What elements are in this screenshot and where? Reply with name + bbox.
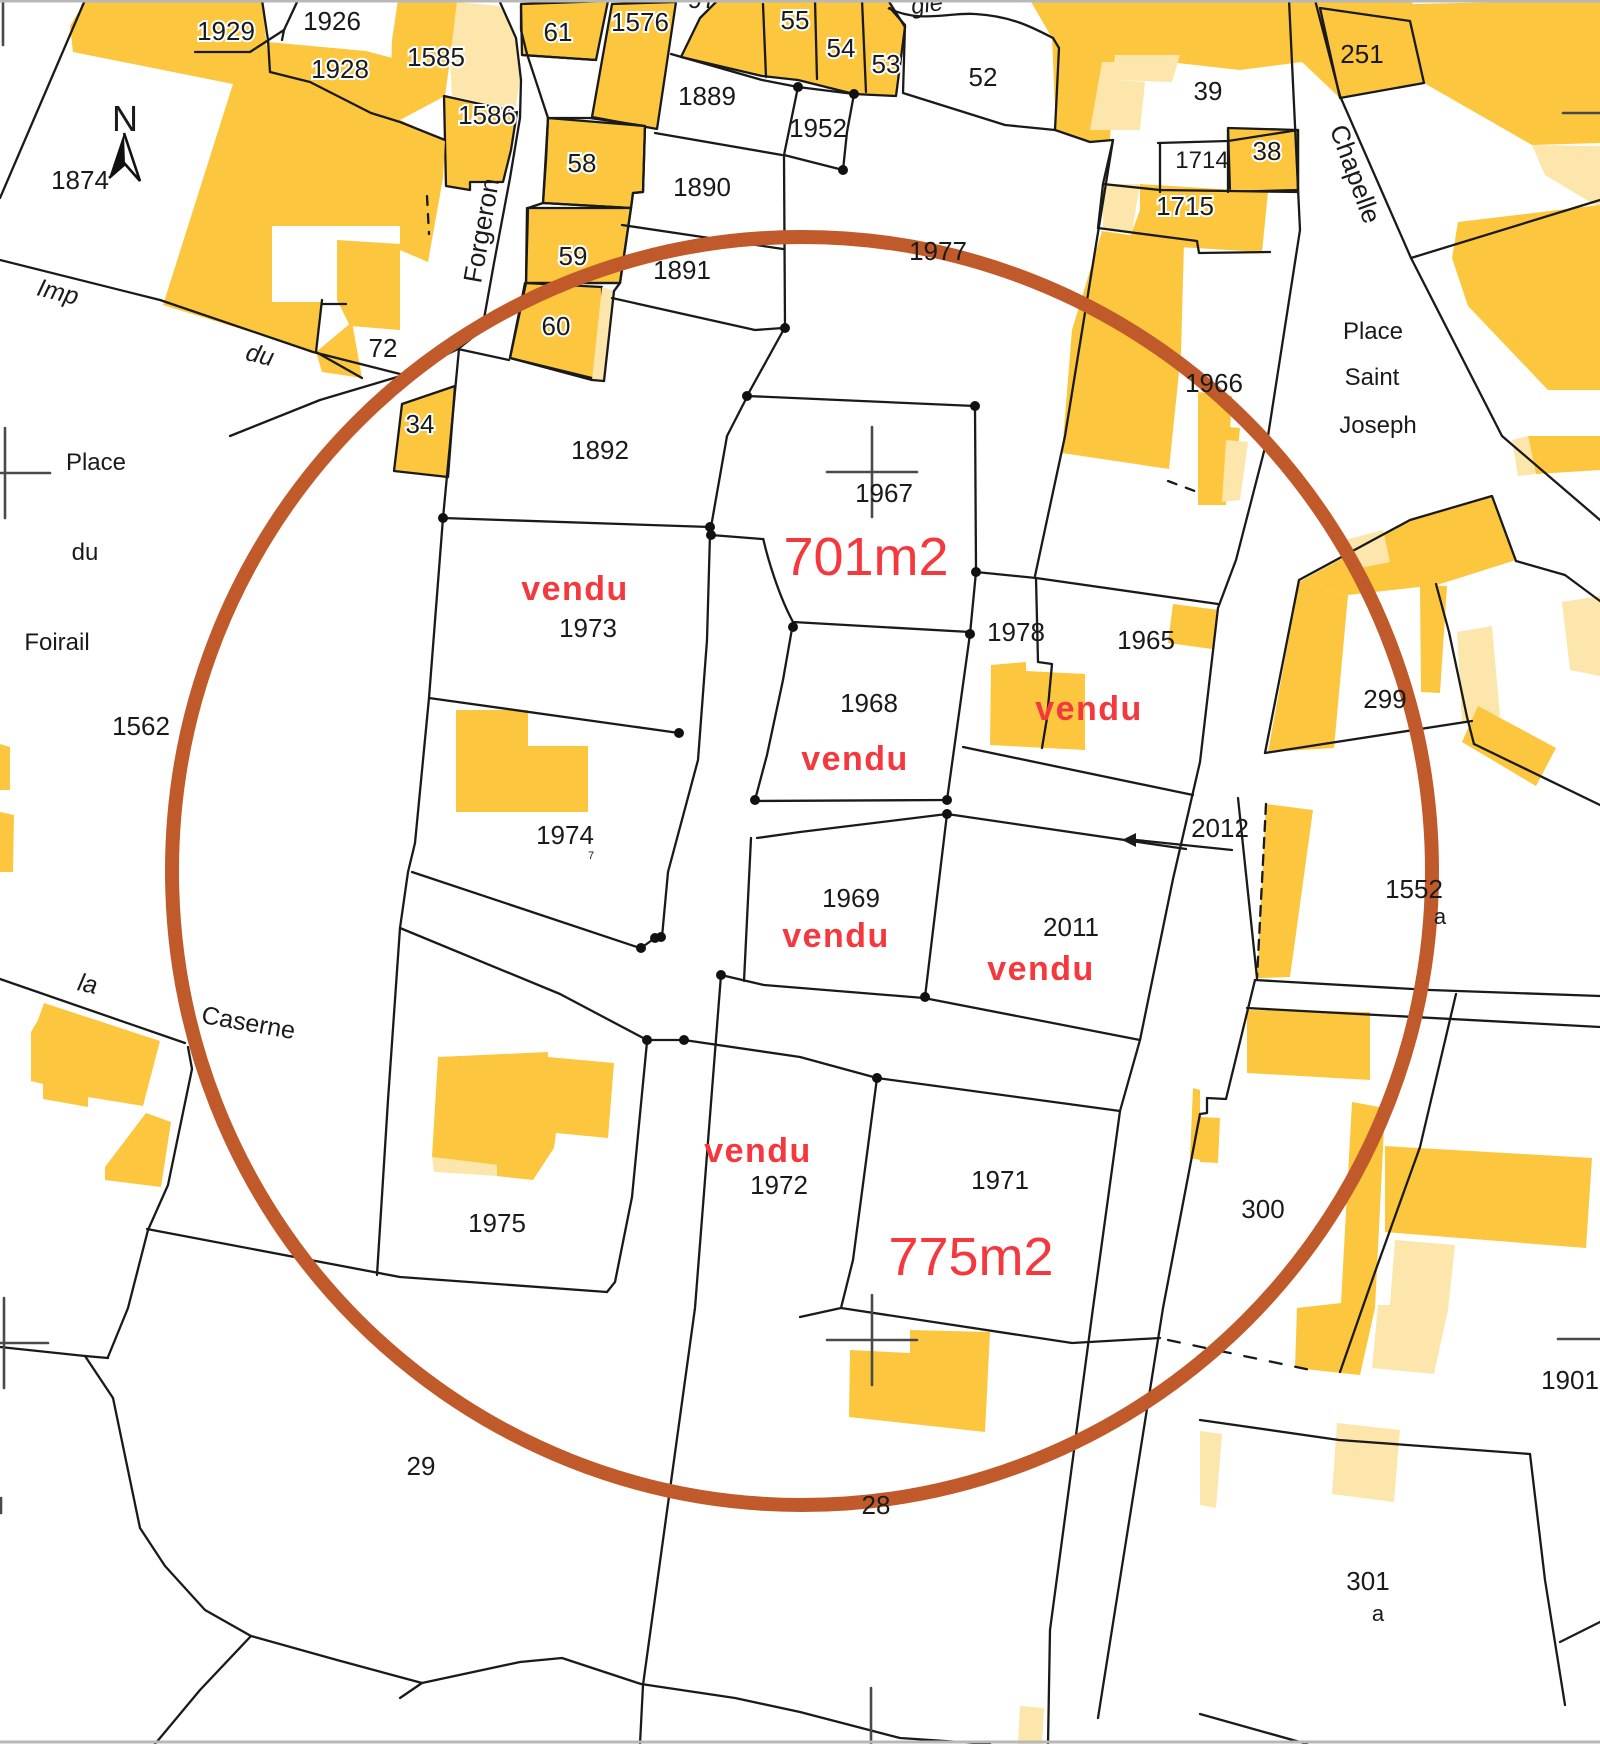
svg-text:1714: 1714 [1175,147,1228,174]
svg-text:a: a [1434,904,1447,929]
svg-text:1968: 1968 [840,688,898,718]
svg-text:52: 52 [969,62,998,92]
svg-text:1967: 1967 [855,478,913,508]
svg-text:Place: Place [1343,318,1403,345]
svg-text:1972: 1972 [750,1170,808,1200]
svg-text:72: 72 [369,333,398,363]
svg-text:vendu: vendu [987,950,1095,988]
svg-text:1586: 1586 [458,100,516,130]
svg-text:55: 55 [781,5,810,35]
svg-text:1715: 1715 [1156,191,1214,221]
svg-text:1926: 1926 [303,6,361,36]
svg-text:701m2: 701m2 [783,527,948,587]
svg-text:60: 60 [542,311,571,341]
svg-text:29: 29 [407,1451,436,1481]
svg-text:vendu: vendu [521,570,629,608]
svg-text:1966: 1966 [1185,368,1243,398]
svg-text:1576: 1576 [611,7,669,37]
svg-text:vendu: vendu [704,1132,812,1170]
svg-text:58: 58 [568,148,597,178]
svg-text:1892: 1892 [571,435,629,465]
svg-text:299: 299 [1363,684,1406,714]
svg-text:54: 54 [827,33,856,63]
svg-text:1929: 1929 [197,16,255,46]
svg-text:34: 34 [406,409,435,439]
svg-text:1974: 1974 [536,820,594,850]
svg-text:vendu: vendu [782,917,890,955]
svg-text:1952: 1952 [789,113,847,143]
svg-text:38: 38 [1253,136,1282,166]
svg-text:1562: 1562 [112,711,170,741]
svg-text:Saint: Saint [1345,364,1400,391]
svg-text:Joseph: Joseph [1339,412,1416,439]
svg-text:1585: 1585 [407,42,465,72]
svg-text:1975: 1975 [468,1208,526,1238]
svg-text:Foirail: Foirail [24,629,89,656]
svg-text:28: 28 [862,1490,891,1520]
svg-text:1891: 1891 [653,255,711,285]
svg-text:vendu: vendu [801,740,909,778]
svg-text:1552: 1552 [1385,874,1443,904]
svg-text:Place: Place [66,449,126,476]
svg-text:1901: 1901 [1541,1365,1599,1395]
svg-text:53: 53 [872,49,901,79]
svg-text:1977: 1977 [909,236,967,266]
svg-text:59: 59 [559,241,588,271]
svg-text:7: 7 [588,850,594,862]
svg-text:61: 61 [544,17,573,47]
svg-text:2011: 2011 [1043,912,1099,942]
svg-text:775m2: 775m2 [888,1227,1053,1287]
svg-text:1928: 1928 [311,54,369,84]
svg-text:2012: 2012 [1191,813,1249,843]
svg-text:1965: 1965 [1117,625,1175,655]
svg-text:du: du [72,539,99,566]
svg-text:1889: 1889 [678,81,736,111]
svg-text:vendu: vendu [1035,690,1143,728]
svg-text:1973: 1973 [559,613,617,643]
svg-text:1971: 1971 [971,1165,1029,1195]
svg-text:300: 300 [1241,1194,1284,1224]
svg-text:301: 301 [1346,1566,1389,1596]
svg-text:251: 251 [1340,39,1383,69]
svg-text:39: 39 [1194,76,1223,106]
svg-text:1969: 1969 [822,883,880,913]
svg-text:1978: 1978 [987,617,1045,647]
svg-text:1890: 1890 [673,172,731,202]
svg-text:1874: 1874 [51,165,109,195]
svg-text:a: a [1372,1601,1385,1626]
